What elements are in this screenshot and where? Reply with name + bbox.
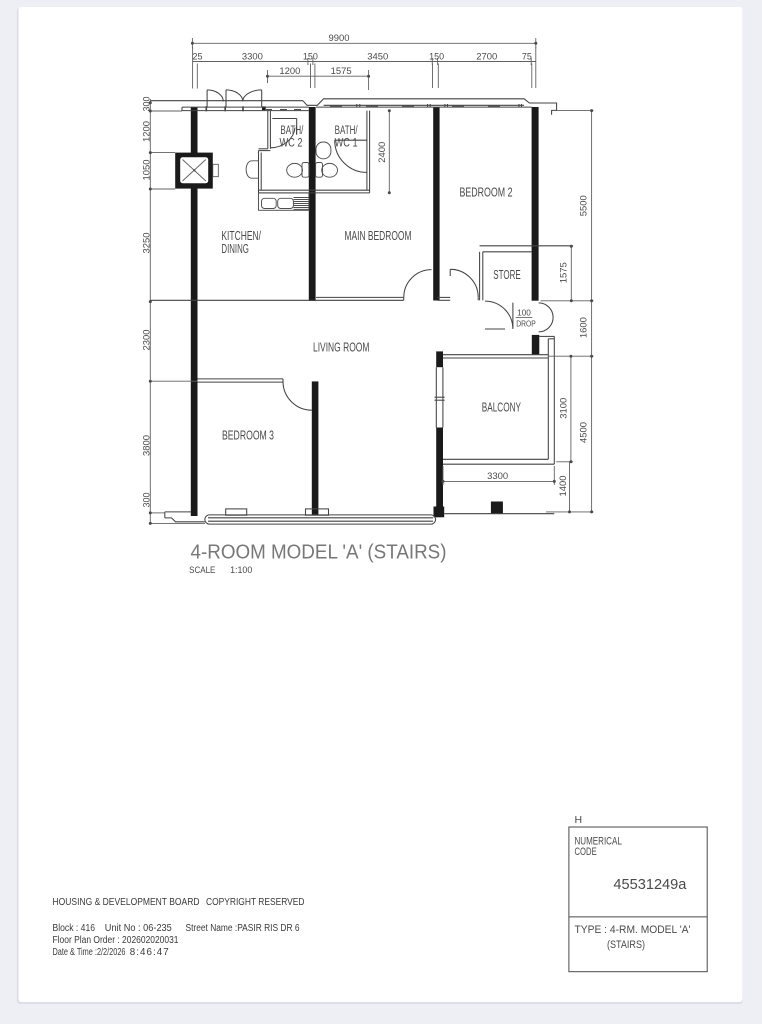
svg-text:5500: 5500: [578, 195, 588, 216]
svg-text:Unit No : 06-235: Unit No : 06-235: [105, 923, 173, 934]
svg-text:4500: 4500: [578, 422, 588, 443]
svg-text:HOUSING & DEVELOPMENT BOARD: HOUSING & DEVELOPMENT BOARD: [53, 897, 200, 908]
svg-text:3300: 3300: [487, 471, 508, 481]
svg-text:1575: 1575: [558, 262, 568, 283]
svg-text:SCALE: SCALE: [189, 565, 215, 575]
svg-text:300: 300: [142, 493, 152, 508]
svg-text:MAIN BEDROOM: MAIN BEDROOM: [345, 229, 412, 243]
svg-text:300: 300: [142, 97, 152, 112]
svg-text:100: 100: [517, 308, 531, 318]
svg-text:1:100: 1:100: [230, 565, 252, 575]
svg-text:1600: 1600: [578, 317, 588, 338]
svg-text:WC 2: WC 2: [280, 138, 303, 150]
svg-text:2300: 2300: [142, 330, 152, 351]
svg-text:Date & Time :2/2/2026: Date & Time :2/2/2026: [53, 947, 126, 958]
svg-text:COPYRIGHT RESERVED: COPYRIGHT RESERVED: [206, 897, 305, 908]
svg-text:CODE: CODE: [575, 846, 597, 858]
svg-text:1050: 1050: [142, 160, 152, 181]
svg-text:BATH/: BATH/: [280, 125, 304, 137]
svg-text:150: 150: [303, 51, 318, 61]
svg-text:STORE: STORE: [493, 268, 521, 282]
svg-text:WC 1: WC 1: [335, 138, 358, 150]
svg-text:BALCONY: BALCONY: [482, 401, 522, 415]
svg-text:75: 75: [522, 51, 532, 61]
svg-text:2400: 2400: [377, 142, 387, 163]
svg-text:4-ROOM MODEL 'A' (STAIRS): 4-ROOM MODEL 'A' (STAIRS): [191, 541, 447, 564]
svg-text:KITCHEN/: KITCHEN/: [221, 229, 261, 243]
svg-text:H: H: [575, 814, 583, 826]
svg-text:3450: 3450: [367, 51, 388, 61]
svg-text:Floor Plan Order : 20260202003: Floor Plan Order : 202602020031: [53, 935, 179, 946]
svg-text:Street Name :PASIR RIS DR 6: Street Name :PASIR RIS DR 6: [186, 923, 300, 934]
svg-text:3800: 3800: [142, 435, 152, 456]
svg-text:(STAIRS): (STAIRS): [607, 939, 645, 951]
svg-text:TYPE : 4-RM. MODEL 'A': TYPE : 4-RM. MODEL 'A': [575, 924, 691, 936]
svg-text:1400: 1400: [558, 476, 568, 497]
svg-text:2700: 2700: [476, 51, 497, 61]
svg-text:9900: 9900: [329, 33, 350, 43]
svg-text:1200: 1200: [279, 66, 300, 76]
svg-text:LIVING ROOM: LIVING ROOM: [313, 341, 369, 355]
svg-text:Block : 416: Block : 416: [53, 923, 96, 934]
svg-text:3100: 3100: [558, 398, 568, 419]
svg-text:150: 150: [429, 51, 444, 61]
svg-text:BATH/: BATH/: [335, 125, 359, 137]
svg-text:1575: 1575: [331, 66, 352, 76]
svg-text:45531249a: 45531249a: [613, 877, 686, 893]
svg-text:DROP: DROP: [516, 319, 536, 329]
svg-text:BEDROOM 3: BEDROOM 3: [222, 429, 274, 443]
svg-text:3300: 3300: [242, 51, 263, 61]
svg-text:BEDROOM 2: BEDROOM 2: [460, 186, 513, 200]
svg-text:8:46:47: 8:46:47: [130, 947, 169, 958]
svg-text:1200: 1200: [142, 121, 152, 142]
svg-text:25: 25: [193, 51, 203, 61]
svg-text:DINING: DINING: [221, 242, 249, 256]
svg-text:3250: 3250: [142, 233, 152, 254]
